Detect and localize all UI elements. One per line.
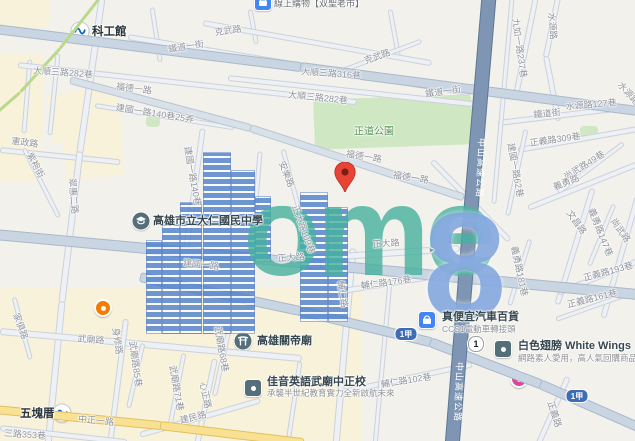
street-label: 三路353巷	[4, 426, 47, 441]
shop-top-partial-label[interactable]: 線上購物【双聖老市】	[274, 0, 364, 10]
temple-label[interactable]: 高雄關帝廟	[257, 332, 312, 348]
street-label: ▸	[429, 244, 434, 255]
watermark-building	[146, 240, 162, 334]
road-segment	[248, 9, 259, 44]
street-label: 大順三路316巷	[301, 64, 362, 81]
park-label: 正道公園	[354, 123, 394, 138]
car-store-label[interactable]: 真便宜汽車百貨	[442, 308, 519, 324]
map-canvas[interactable]: ome8克武路克武路鐵道一街鐵道一街大順三路316巷大順三路282巷大順三路28…	[0, 0, 635, 441]
provincial-route-shield: 1甲	[566, 389, 589, 403]
watermark-building	[203, 152, 231, 334]
city-block	[61, 123, 124, 181]
national-highway-shield: 1	[468, 336, 484, 352]
street-label: 正大路	[372, 236, 400, 251]
white-wings-store-label[interactable]: 白色翅膀 White Wings	[518, 337, 631, 353]
road-segment	[372, 281, 392, 441]
city-block	[0, 0, 50, 27]
watermark-building	[162, 224, 180, 334]
street-label: 克武路	[214, 22, 243, 39]
school-label[interactable]: 高雄市立大仁國民中學	[153, 212, 263, 228]
highway-label: 中山高速公路	[451, 362, 466, 422]
kmrt-station-label[interactable]: 科工館	[92, 23, 127, 39]
provincial-route-shield: 1甲	[395, 327, 418, 341]
kmrt-station-label[interactable]: 五塊厝	[20, 405, 55, 421]
car-store-subtitle: CCS1電動車轉接頭	[442, 323, 516, 335]
shop-top-partial-icon[interactable]	[254, 0, 272, 11]
poi-dot-icon[interactable]	[94, 299, 112, 317]
temple-icon[interactable]	[234, 332, 253, 351]
school-icon[interactable]	[132, 212, 151, 231]
highway-label: 中山高速公路	[473, 138, 488, 198]
street-label: 武廟路	[77, 332, 105, 347]
street-label: 正大路	[277, 250, 305, 265]
map-pin[interactable]	[334, 162, 356, 197]
white-wings-store-subtitle: 網路素人愛用，高人氣回購商品	[518, 352, 635, 364]
school-biz-subtitle: 承襲半世紀教育實力全新啟航未來	[267, 387, 395, 399]
school-biz-icon[interactable]	[244, 379, 262, 397]
street-label: 水源路	[545, 12, 560, 40]
